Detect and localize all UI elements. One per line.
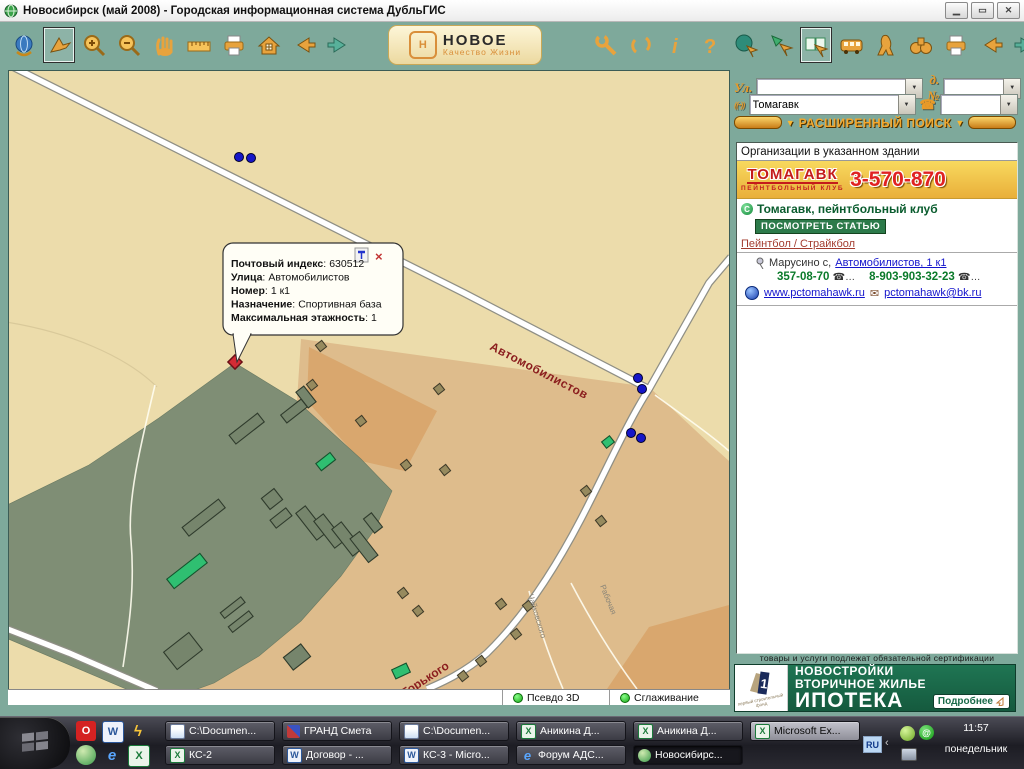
info-icon: i	[663, 32, 689, 58]
pedestrian-icon	[873, 32, 899, 58]
chevron-down-icon	[955, 118, 964, 128]
measure-tool[interactable]	[183, 27, 215, 63]
language-indicator[interactable]: RU	[863, 736, 882, 753]
go-to-tool[interactable]	[765, 27, 797, 63]
task-button[interactable]: ГРАНД Смета	[282, 721, 392, 741]
home-icon	[256, 32, 282, 58]
search-tool[interactable]	[905, 27, 937, 63]
name-search-row: ((··)) ☎	[734, 94, 1016, 115]
name-input[interactable]	[750, 95, 898, 114]
printer-icon	[943, 32, 969, 58]
phone-handset-icon[interactable]	[958, 272, 980, 283]
maximize-button[interactable]: ▭	[971, 2, 994, 19]
green-dot-icon	[620, 693, 630, 703]
print-article-tool[interactable]	[940, 27, 972, 63]
svg-text:Номер:1 к1: Номер:1 к1	[231, 285, 290, 297]
wrench-icon	[593, 32, 619, 58]
zoom-in-icon	[81, 32, 107, 58]
network-tray-icon[interactable]	[901, 748, 917, 761]
close-tooltip-icon[interactable]: ×	[375, 249, 383, 264]
organization-row: Томагавк, пейнтбольный клуб	[737, 199, 1017, 217]
gold-capsule	[734, 116, 782, 129]
history-back-tool[interactable]	[975, 27, 1007, 63]
document-icon	[170, 724, 185, 739]
builder-logo-icon: 1	[746, 669, 776, 697]
phone-number-1[interactable]: 357-08-70	[777, 271, 829, 283]
transport-tool[interactable]	[835, 27, 867, 63]
icq-tray-icon[interactable]	[900, 726, 915, 741]
pedestrian-tool[interactable]	[870, 27, 902, 63]
ipoteka-ad-banner[interactable]: 1 первый строительный фонд НОВОСТРОЙКИ В…	[734, 664, 1016, 712]
name-search-icon: ((··))	[734, 100, 745, 110]
organization-name: Томагавк, пейнтбольный клуб	[757, 202, 938, 216]
grand-smeta-icon	[287, 725, 300, 738]
word-quicklaunch-icon[interactable]	[102, 721, 124, 743]
address-row: Марусино с, Автомобилистов, 1 к1	[737, 255, 1017, 269]
more-label: Подробнее	[938, 696, 993, 707]
links-row: www.pctomahawk.ru pctomahawk@bk.ru	[737, 284, 1017, 303]
pointer-hand-icon	[46, 32, 72, 58]
results-header: Организации в указанном здании	[737, 143, 1017, 161]
svg-text:Максимальная этажность:1: Максимальная этажность:1	[231, 312, 377, 324]
chevron-down-icon[interactable]	[898, 95, 915, 114]
excel-icon	[521, 724, 536, 739]
map-select-tool[interactable]	[730, 27, 762, 63]
smoothing-label: Сглаживание	[634, 692, 699, 704]
zoom-in-tool[interactable]	[78, 27, 110, 63]
minimize-button[interactable]: ▁	[945, 2, 968, 19]
binoculars-icon	[908, 32, 934, 58]
advanced-search-label: РАСШИРЕННЫЙ ПОИСК	[799, 116, 952, 130]
view-article-button[interactable]: ПОСМОТРЕТЬ СТАТЬЮ	[755, 219, 886, 234]
home-tool[interactable]	[253, 27, 285, 63]
gold-capsule	[968, 116, 1016, 129]
dublgis-icon	[638, 749, 651, 762]
svg-text:?: ?	[704, 36, 716, 58]
email-envelope-icon	[870, 287, 879, 300]
question-icon: ?	[698, 32, 724, 58]
settings-tool[interactable]	[590, 27, 622, 63]
divider	[737, 252, 1017, 253]
close-button[interactable]: ✕	[997, 2, 1020, 19]
globe-icon	[11, 32, 37, 58]
website-link[interactable]: www.pctomahawk.ru	[764, 287, 865, 299]
pan-tool[interactable]	[148, 27, 180, 63]
forward-arrow-icon	[326, 32, 352, 58]
ad-subtitle: ПЕЙНТБОЛЬНЫЙ КЛУБ	[741, 185, 844, 192]
email-link[interactable]: pctomahawk@bk.ru	[884, 287, 981, 299]
dublgis-quicklaunch-icon[interactable]	[76, 745, 96, 765]
lightning-quicklaunch-icon[interactable]	[128, 721, 148, 741]
phones-row: 357-08-70 8-903-903-32-23	[737, 269, 1017, 284]
advanced-search-button[interactable]: РАСШИРЕННЫЙ ПОИСК	[734, 115, 1016, 130]
tomahawk-ad-banner[interactable]: ТОМАГАВК ПЕЙНТБОЛЬНЫЙ КЛУБ 3-570-870	[737, 161, 1017, 199]
name-combobox[interactable]	[749, 94, 916, 115]
app-globe-icon	[4, 4, 18, 18]
ruler-icon	[186, 32, 212, 58]
excel-icon	[170, 748, 185, 763]
website-globe-icon	[745, 286, 759, 300]
results-panel: Организации в указанном здании ТОМАГАВК …	[736, 142, 1018, 654]
svg-text:i: i	[672, 36, 678, 58]
tray-collapse-icon[interactable]: ‹	[885, 737, 889, 749]
phone-icon: ☎	[920, 97, 936, 113]
refresh-tool[interactable]	[625, 27, 657, 63]
address-prefix: Марусино с,	[769, 257, 831, 269]
ad-brand: ТОМАГАВК	[747, 167, 837, 184]
builder-logo: 1 первый строительный фонд	[735, 665, 788, 711]
rubric-link[interactable]: Пейнтбол / Страйкбол	[741, 238, 1013, 250]
new-quality-banner[interactable]: Н НОВОЕ Качество Жизни	[388, 25, 542, 65]
phone-combobox[interactable]	[940, 94, 1018, 115]
select-tool[interactable]	[43, 27, 75, 63]
zoom-out-tool[interactable]	[113, 27, 145, 63]
task-button[interactable]: КС-2	[165, 745, 275, 765]
phone-handset-icon[interactable]	[833, 272, 855, 283]
chevron-down-icon	[786, 118, 795, 128]
history-forward-tool[interactable]	[1010, 27, 1024, 63]
banner-line1: НОВОЕ	[443, 34, 521, 47]
banner-line3: ИПОТЕКА	[795, 691, 903, 711]
task-button[interactable]: Договор - ...	[282, 745, 392, 765]
app-tools-group: i ?	[590, 27, 1024, 63]
phone-number-2[interactable]: 8-903-903-32-23	[869, 271, 955, 283]
certification-notice: товары и услуги подлежат обязательной се…	[738, 653, 1016, 663]
task-button[interactable]: КС-3 - Micro...	[399, 745, 509, 765]
map-pin-icon	[755, 257, 765, 269]
bus-icon	[838, 32, 864, 58]
excel-quicklaunch-icon[interactable]	[128, 745, 150, 767]
pseudo3d-toggle[interactable]: Псевдо 3D	[502, 690, 609, 705]
task-button-active[interactable]: Новосибирс...	[633, 745, 743, 765]
opera-quicklaunch-icon[interactable]	[76, 721, 96, 741]
clock-day: понедельник	[936, 743, 1016, 755]
title-bar: Новосибирск (май 2008) - Городская инфор…	[0, 0, 1024, 22]
more-button[interactable]: Подробнее	[933, 694, 1010, 709]
word-icon	[404, 748, 419, 763]
book-hand-icon	[803, 32, 829, 58]
document-icon	[404, 724, 419, 739]
ad-phone: 3-570-870	[850, 168, 946, 192]
green-dot-icon	[513, 693, 523, 703]
zoom-out-icon	[116, 32, 142, 58]
ie-icon	[521, 749, 534, 762]
article-marker-icon	[741, 203, 753, 215]
banner-line2: Качество Жизни	[443, 47, 521, 57]
phone-input[interactable]	[941, 95, 1000, 114]
forward-tool[interactable]	[323, 27, 355, 63]
cursor-arrow-icon	[995, 696, 1005, 706]
mail-agent-tray-icon[interactable]	[919, 725, 934, 740]
taskbar-clock[interactable]: 11:57 понедельник	[936, 722, 1016, 755]
map-hand-icon	[733, 32, 759, 58]
clock-time: 11:57	[936, 722, 1016, 734]
chevron-down-icon[interactable]	[1000, 95, 1017, 114]
pentagon-logo-icon: Н	[409, 31, 437, 59]
globe-tool[interactable]	[8, 27, 40, 63]
taskbar: C:\Documen... ГРАНД Смета C:\Documen... …	[0, 716, 1024, 769]
printer-icon	[221, 32, 247, 58]
svg-text:1: 1	[759, 676, 768, 692]
svg-text:Почтовый индекс:630512: Почтовый индекс:630512	[231, 258, 364, 270]
main-toolbar: Н НОВОЕ Качество Жизни i ?	[0, 22, 1024, 68]
help-tool[interactable]: ?	[695, 27, 727, 63]
map-status-bar: Псевдо 3D Сглаживание	[8, 689, 730, 705]
info-tool[interactable]: i	[660, 27, 692, 63]
excel-icon	[755, 724, 770, 739]
ie-quicklaunch-icon[interactable]	[102, 745, 122, 765]
word-icon	[287, 748, 302, 763]
directory-tool[interactable]	[800, 27, 832, 63]
desktop: { "window": { "title": "Новосибирск (май…	[0, 0, 1024, 768]
back-arrow-icon	[978, 32, 1004, 58]
smoothing-toggle[interactable]: Сглаживание	[609, 690, 730, 705]
windows-logo-icon	[20, 731, 50, 755]
map-canvas[interactable]: Автомобилистов Горького Чайковского Рабо…	[8, 70, 730, 690]
green-arrow-hand-icon	[768, 32, 794, 58]
address-link[interactable]: Автомобилистов, 1 к1	[835, 257, 946, 269]
svg-text:Назначение:Спортивная база: Назначение:Спортивная база	[231, 299, 382, 311]
svg-text:Улица:Автомобилистов: Улица:Автомобилистов	[231, 272, 350, 284]
back-tool[interactable]	[288, 27, 320, 63]
task-button[interactable]: Форум АДС...	[516, 745, 626, 765]
window-title: Новосибирск (май 2008) - Городская инфор…	[23, 5, 446, 17]
divider	[737, 305, 1017, 306]
task-button[interactable]: Microsoft Ex...	[750, 721, 860, 741]
task-button[interactable]: C:\Documen...	[399, 721, 509, 741]
task-button[interactable]: Аникина Д...	[516, 721, 626, 741]
pseudo3d-label: Псевдо 3D	[527, 692, 579, 704]
map-tools-group	[8, 27, 355, 63]
refresh-icon	[628, 32, 654, 58]
print-map-tool[interactable]	[218, 27, 250, 63]
forward-arrow-icon	[1013, 32, 1024, 58]
task-button[interactable]: C:\Documen...	[165, 721, 275, 741]
start-button[interactable]	[0, 717, 70, 769]
task-button[interactable]: Аникина Д...	[633, 721, 743, 741]
back-arrow-icon	[291, 32, 317, 58]
hand-icon	[151, 32, 177, 58]
excel-icon	[638, 724, 653, 739]
